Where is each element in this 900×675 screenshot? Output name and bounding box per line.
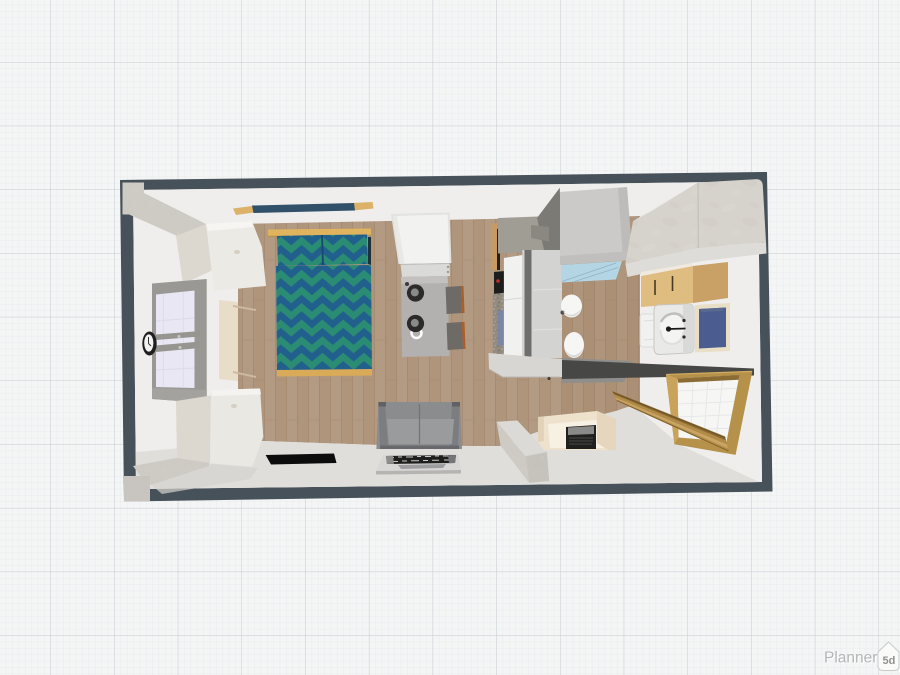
svg-text:Planner: Planner bbox=[824, 650, 877, 667]
svg-text:5d: 5d bbox=[883, 655, 896, 667]
